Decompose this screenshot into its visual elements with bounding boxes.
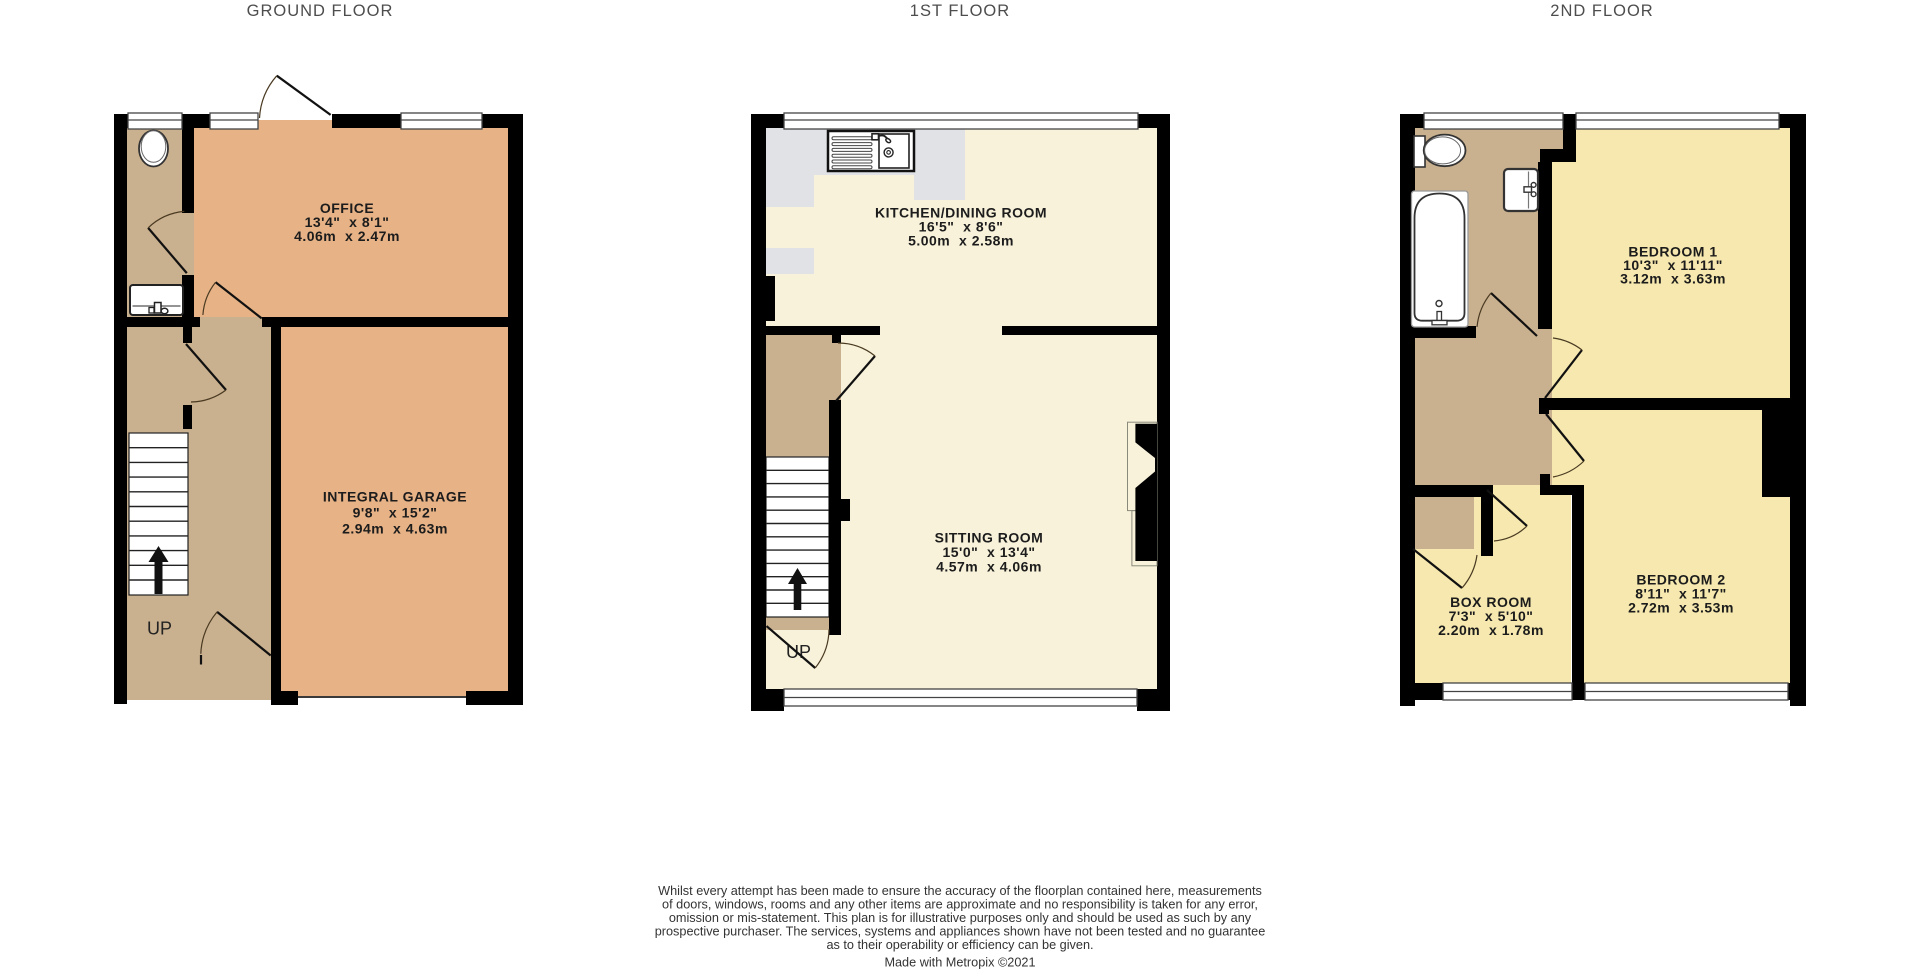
svg-text:3.12m x 3.63m: 3.12m x 3.63m [1620,271,1726,287]
svg-text:of doors, windows, rooms and a: of doors, windows, rooms and any other i… [662,898,1258,912]
svg-text:2.72m x 3.53m: 2.72m x 3.53m [1628,600,1734,616]
svg-text:Made with Metropix ©2021: Made with Metropix ©2021 [884,956,1035,970]
svg-text:INTEGRAL GARAGE: INTEGRAL GARAGE [323,489,467,505]
svg-text:2.20m x 1.78m: 2.20m x 1.78m [1438,622,1544,638]
svg-text:9'8" x 15'2": 9'8" x 15'2" [353,505,438,521]
svg-text:prospective purchaser. The ser: prospective purchaser. The services, sys… [655,925,1266,939]
svg-text:Whilst every attempt has been: Whilst every attempt has been made to en… [658,884,1262,898]
svg-text:5.00m x 2.58m: 5.00m x 2.58m [908,233,1014,249]
svg-text:UP: UP [147,619,172,639]
svg-text:4.57m x 4.06m: 4.57m x 4.06m [936,559,1042,575]
svg-text:GROUND FLOOR: GROUND FLOOR [247,2,394,20]
svg-text:4.06m x 2.47m: 4.06m x 2.47m [294,228,400,244]
svg-text:1ST FLOOR: 1ST FLOOR [910,2,1010,20]
svg-text:2ND FLOOR: 2ND FLOOR [1550,2,1653,20]
svg-text:omission or mis-statement. Thi: omission or mis-statement. This plan is … [669,911,1252,925]
svg-text:as to their operability or eff: as to their operability or efficiency ca… [826,938,1093,952]
svg-text:2.94m x 4.63m: 2.94m x 4.63m [342,521,448,537]
